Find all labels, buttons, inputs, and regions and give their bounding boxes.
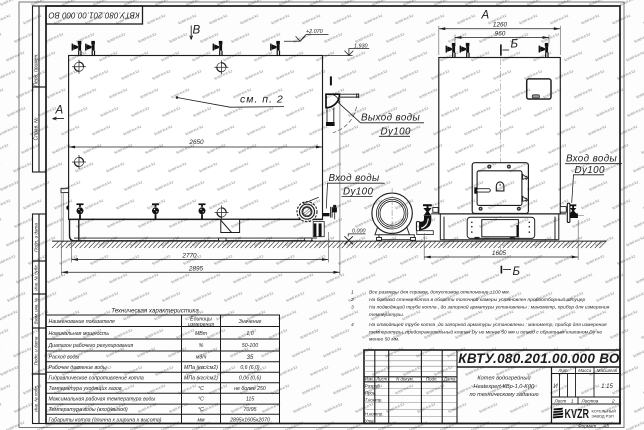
svg-text:Утв.: Утв. bbox=[365, 418, 375, 423]
svg-text:На отводящей трубе котла ,до з: На отводящей трубе котла ,до запорной ар… bbox=[369, 321, 607, 328]
svg-text:2895: 2895 bbox=[188, 265, 204, 272]
svg-text:Изм.: Изм. bbox=[365, 377, 374, 382]
svg-text:Т.контр.: Т.контр. bbox=[365, 397, 383, 402]
svg-text:Дата: Дата bbox=[443, 377, 456, 382]
svg-text:4: 4 bbox=[351, 322, 354, 328]
svg-text:1:15: 1:15 bbox=[601, 384, 613, 390]
svg-text:°С: °С bbox=[198, 397, 204, 403]
svg-text:ЗАВОД РЭП: ЗАВОД РЭП bbox=[592, 414, 614, 419]
svg-text:°С: °С bbox=[198, 386, 204, 392]
svg-text:Подп.: Подп. bbox=[426, 377, 438, 382]
svg-text:см. п. 2: см. п. 2 bbox=[240, 94, 284, 106]
svg-text:Котел водогрейный: Котел водогрейный bbox=[477, 375, 530, 382]
svg-text:%: % bbox=[199, 343, 204, 349]
svg-text:Н.контр.: Н.контр. bbox=[365, 411, 384, 416]
svg-text:В: В bbox=[193, 25, 201, 37]
svg-text:Инв. № дубл.: Инв. № дубл. bbox=[34, 264, 39, 290]
svg-text:1: 1 bbox=[571, 399, 574, 404]
svg-text:N докум.: N докум. bbox=[396, 377, 414, 382]
svg-text:МПа (кгс/см2): МПа (кгс/см2) bbox=[184, 376, 218, 382]
svg-text:А: А bbox=[55, 105, 64, 117]
svg-text:70/95: 70/95 bbox=[244, 407, 257, 413]
svg-text:Техническая характеристика: Техническая характеристика bbox=[111, 308, 199, 315]
svg-text:по техническому заданию: по техническому заданию bbox=[469, 392, 539, 398]
svg-text:Лист: Лист bbox=[375, 377, 387, 382]
svg-text:35: 35 bbox=[247, 355, 254, 361]
svg-text:Максимальная рабочая температу: Максимальная рабочая температура воды bbox=[49, 397, 156, 403]
svg-text:Наименование показателя: Наименование показателя bbox=[49, 319, 115, 325]
svg-text:Вход воды: Вход воды bbox=[566, 154, 618, 165]
svg-text:Подп. и дата: Подп. и дата bbox=[34, 336, 39, 365]
